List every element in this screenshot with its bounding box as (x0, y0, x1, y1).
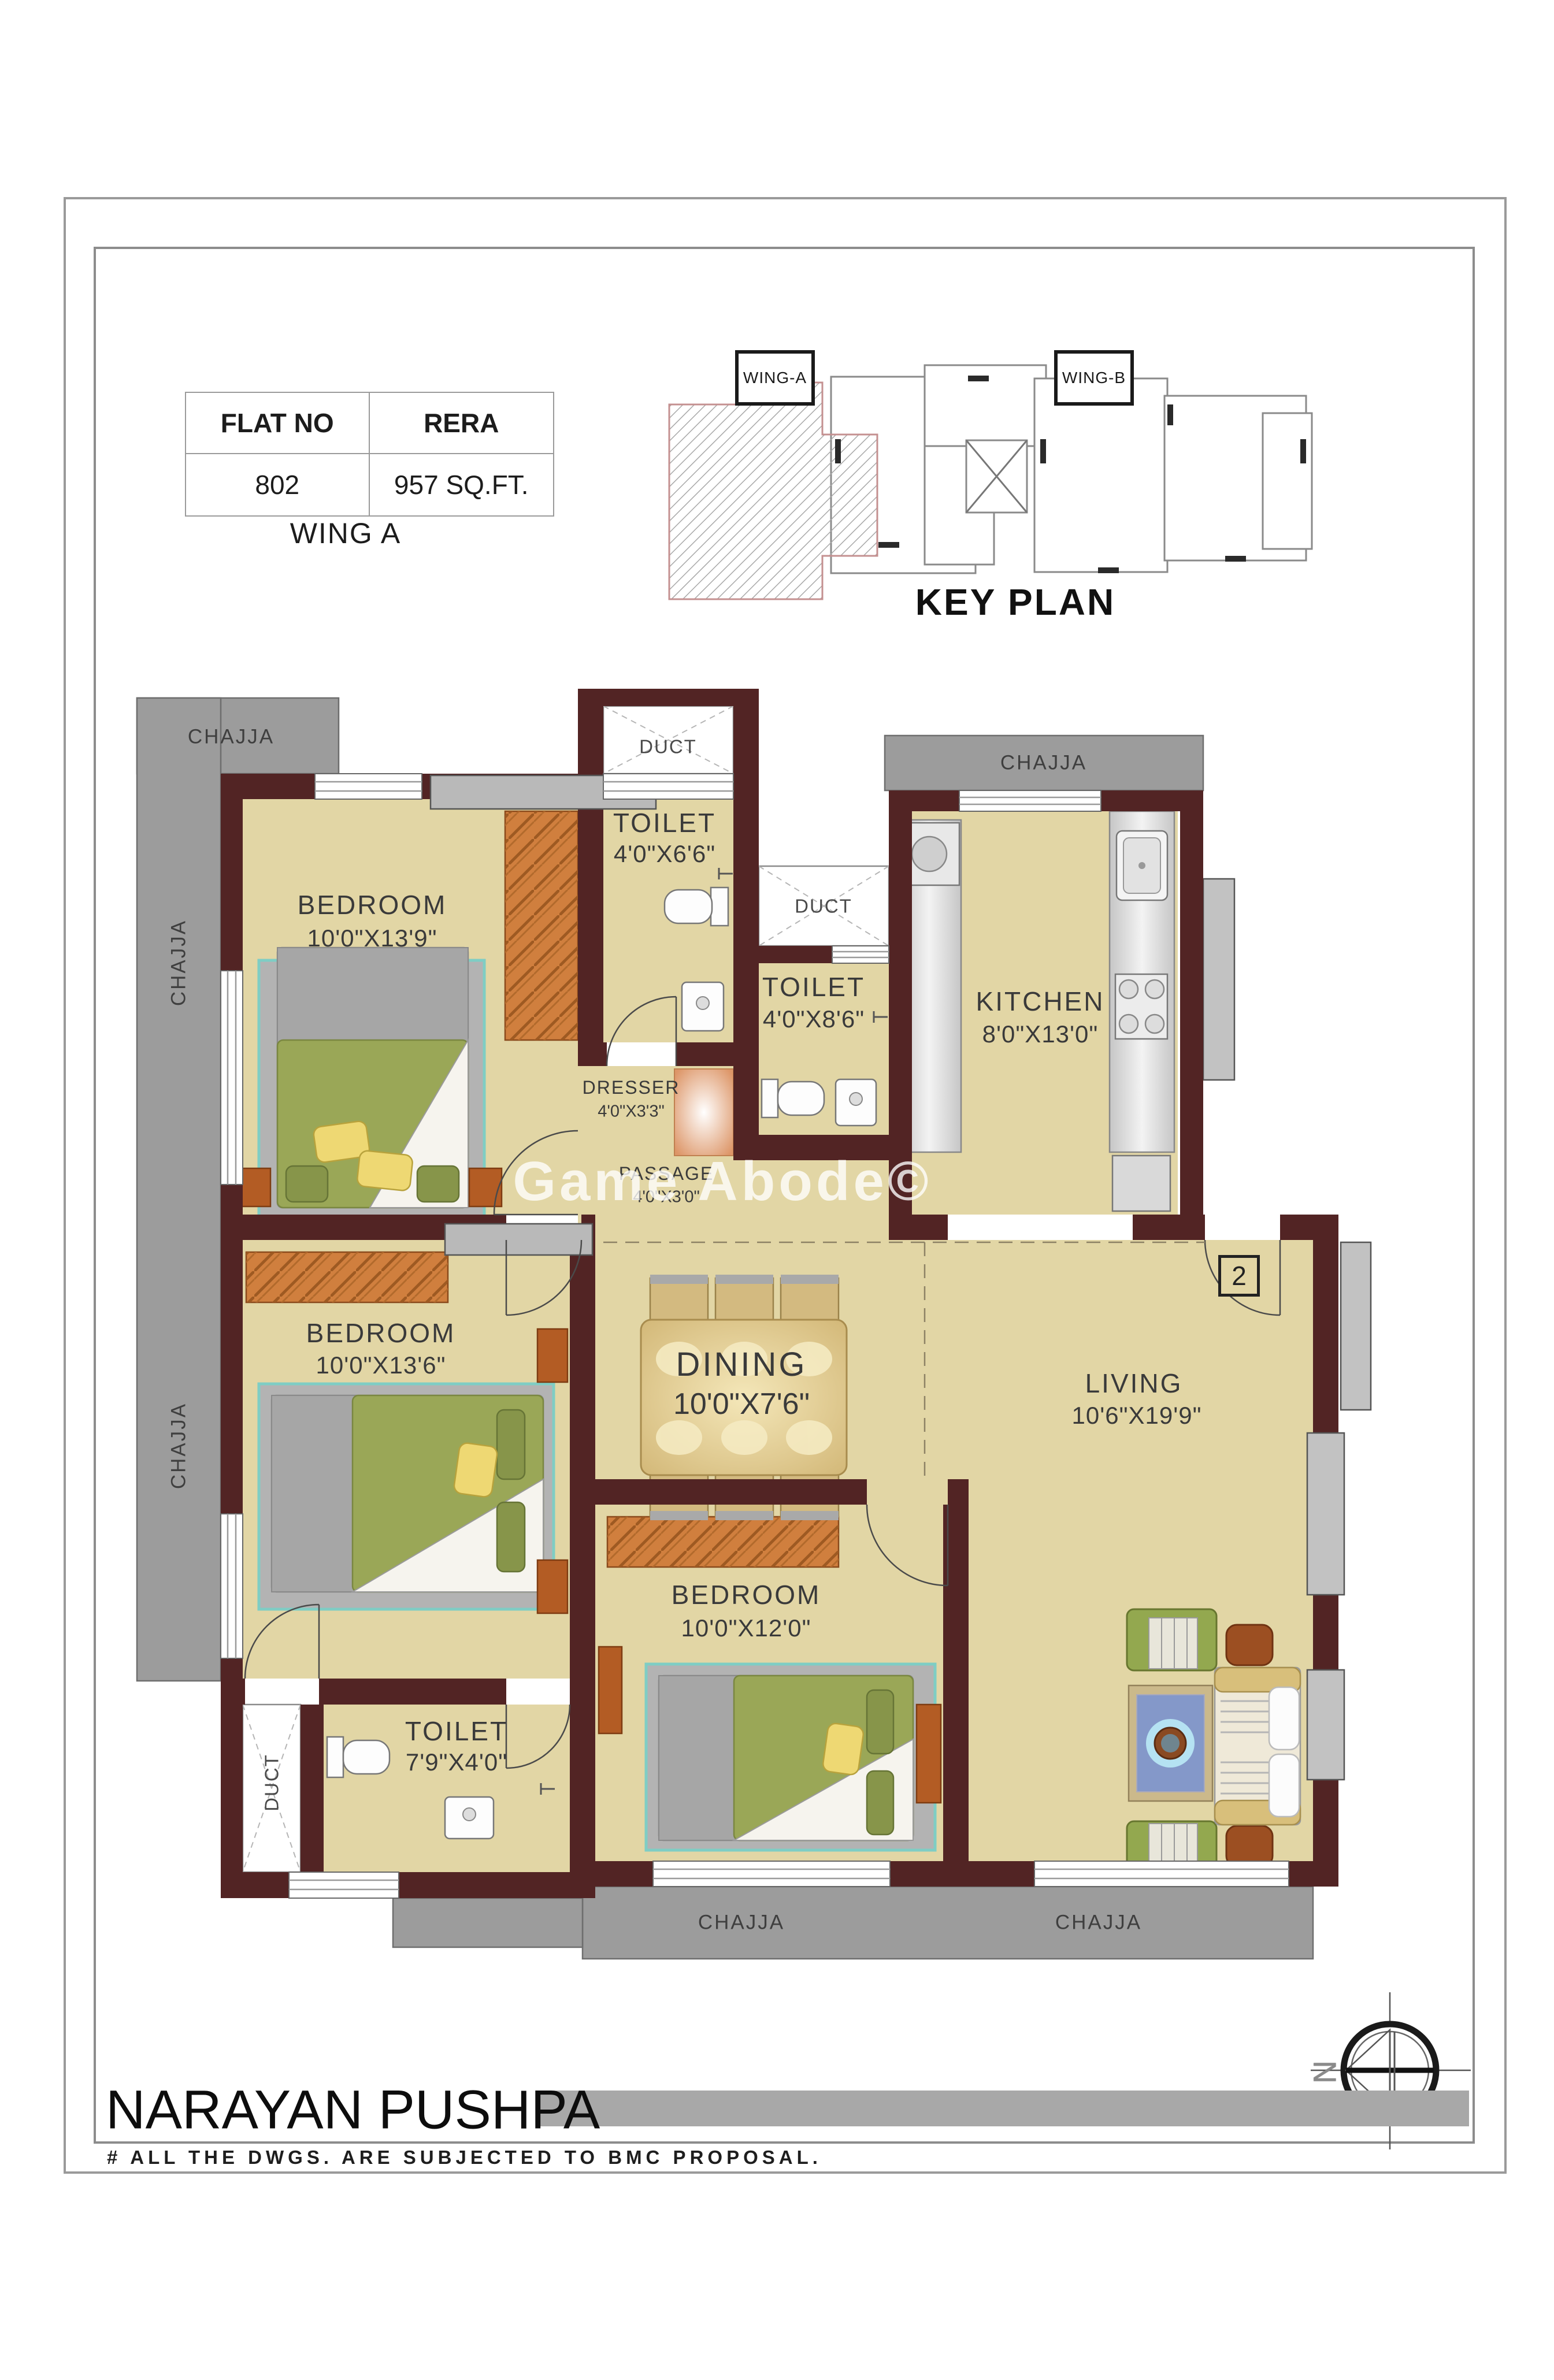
wing-a-box: WING-A (735, 350, 815, 406)
toilet2-name: TOILET (762, 974, 865, 1000)
wc (762, 1079, 778, 1117)
chajja-label: CHAJJA (188, 727, 275, 747)
toilet2-dims: 4'0"X8'6" (763, 1007, 865, 1031)
duct-label: DUCT (795, 897, 852, 916)
living-window (1307, 1433, 1344, 1595)
wc (327, 1737, 343, 1777)
dining-name: DINING (676, 1348, 807, 1382)
rera-header: RERA (370, 393, 554, 454)
chajja-label: CHAJJA (1000, 753, 1087, 773)
bedroom3-dims: 10'0"X12'0" (681, 1616, 811, 1640)
entrance-door-number: 2 (1218, 1255, 1260, 1297)
dresser-name: DRESSER (583, 1078, 680, 1097)
toilet1-name: TOILET (613, 810, 716, 836)
rera-value: 957 SQ.FT. (370, 454, 554, 515)
duct-label: DUCT (639, 737, 697, 756)
wc (711, 888, 728, 926)
nightstand (537, 1329, 568, 1382)
disclaimer-text: # ALL THE DWGS. ARE SUBJECTED TO BMC PRO… (107, 2147, 822, 2169)
wing-a-label: WING-A (743, 369, 807, 387)
footer-bar (537, 2091, 1469, 2126)
wing-b-box: WING-B (1054, 350, 1134, 406)
dining-dims: 10'0"X7'6" (673, 1389, 810, 1419)
ottoman (1226, 1826, 1273, 1866)
living-window (1307, 1670, 1344, 1780)
dresser-dims: 4'0"X3'3" (598, 1104, 665, 1120)
bedroom3-furniture (599, 1647, 941, 1850)
nightstand (469, 1168, 502, 1206)
ottoman (1226, 1625, 1273, 1665)
flat-info-table: FLAT NO RERA 802 957 SQ.FT. (185, 392, 554, 517)
coffee-table (1129, 1685, 1212, 1801)
toilet1-dims: 4'0"X6'6" (614, 842, 715, 866)
bedroom2-name: BEDROOM (306, 1320, 456, 1346)
north-letter: N (1306, 2060, 1344, 2084)
flat-no-value: 802 (186, 454, 370, 515)
toilet3-dims: 7'9"X4'0" (406, 1750, 507, 1774)
duct-label: DUCT (262, 1754, 281, 1811)
wing-b-label: WING-B (1062, 369, 1126, 387)
chajja-label: CHAJJA (169, 919, 189, 1006)
flat-no-header: FLAT NO (186, 393, 370, 454)
living-name: LIVING (1085, 1370, 1183, 1397)
bedroom2-dims: 10'0"X13'6" (316, 1353, 446, 1377)
toilet3-name: TOILET (405, 1718, 508, 1744)
kitchen-dims: 8'0"X13'0" (982, 1022, 1099, 1046)
dresser-unit (674, 1069, 733, 1156)
chajja-label: CHAJJA (698, 1913, 785, 1933)
bedroom1-name: BEDROOM (298, 892, 447, 918)
bedroom3-name: BEDROOM (672, 1581, 821, 1608)
kitchen-name: KITCHEN (976, 988, 1105, 1015)
nightstand (917, 1705, 941, 1803)
bedroom1-dims: 10'0"X13'9" (307, 926, 437, 950)
chajja-label: CHAJJA (1055, 1913, 1142, 1933)
project-name: NARAYAN PUSHPA (106, 2079, 600, 2142)
fridge (1112, 1156, 1170, 1211)
chajja-label: CHAJJA (169, 1402, 189, 1489)
watermark: Game Abode© (513, 1154, 932, 1209)
nightstand (537, 1560, 568, 1613)
sofa (1215, 1668, 1300, 1825)
wing-label: WING A (290, 517, 402, 550)
key-plan-title: KEY PLAN (915, 581, 1115, 623)
bedroom1-furniture (236, 948, 502, 1221)
living-dims: 10'6"X19'9" (1071, 1404, 1201, 1428)
floor-plan-sheet: FLAT NO RERA 802 957 SQ.FT. WING A WING-… (0, 0, 1554, 2380)
nightstand (599, 1647, 622, 1733)
